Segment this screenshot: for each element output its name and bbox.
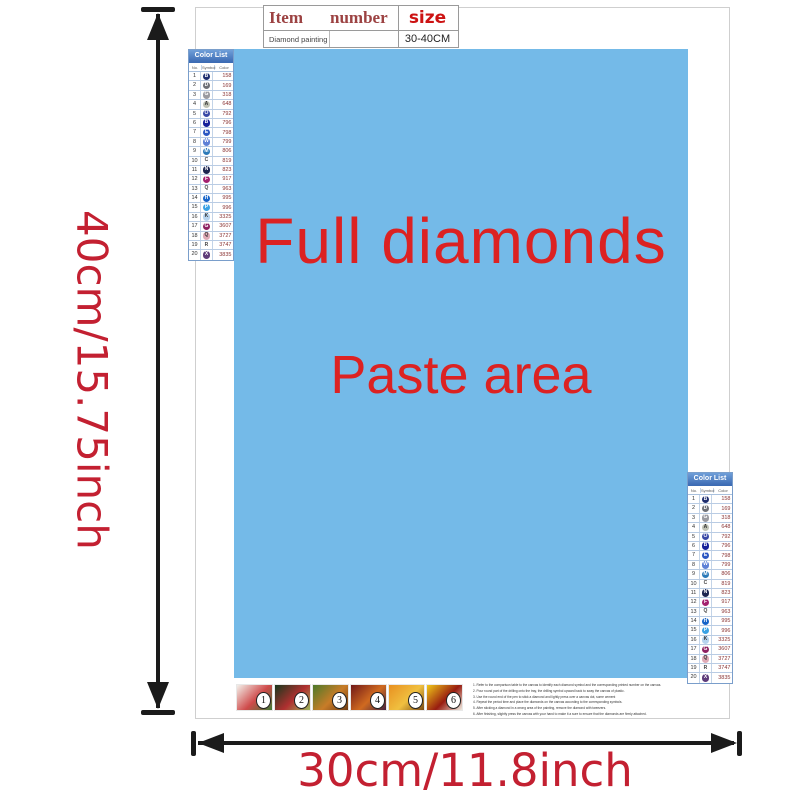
- color-row-number: 17: [688, 645, 700, 653]
- color-symbol-glyph: A: [203, 101, 210, 108]
- color-list-row: 3 G 318: [688, 514, 732, 523]
- color-list-row: 20 X 3835: [189, 250, 233, 259]
- product-sheet: Item number size Diamond painting 30-40C…: [195, 7, 730, 719]
- color-symbol-icon: M: [700, 570, 712, 578]
- color-row-number: 9: [189, 147, 201, 155]
- color-dmc-code: 798: [213, 130, 233, 136]
- color-dmc-code: 169: [213, 83, 233, 89]
- color-symbol-glyph: R: [702, 665, 709, 672]
- color-list-row: 19 R 3747: [189, 241, 233, 250]
- color-symbol-icon: C: [201, 157, 213, 165]
- color-list-row: 8 W 799: [688, 561, 732, 570]
- color-symbol-icon: B: [201, 119, 213, 127]
- color-dmc-code: 917: [712, 599, 732, 605]
- color-list-left: Color List No. Symbol Color 1 B 158 2 D …: [188, 49, 234, 261]
- color-symbol-icon: W: [700, 561, 712, 569]
- instructions-text: 1. Refer to the comparison table to the …: [473, 683, 705, 718]
- color-list-row: 14 H 995: [189, 194, 233, 203]
- color-symbol-glyph: Q: [203, 232, 210, 239]
- color-symbol-glyph: C: [203, 157, 210, 164]
- color-symbol-icon: A: [700, 523, 712, 531]
- color-symbol-glyph: G: [203, 223, 210, 230]
- color-symbol-glyph: G: [702, 514, 709, 521]
- color-dmc-code: 798: [712, 553, 732, 559]
- color-symbol-glyph: Q: [702, 655, 709, 662]
- color-dmc-code: 318: [712, 515, 732, 521]
- color-symbol-glyph: C: [702, 580, 709, 587]
- color-row-number: 2: [189, 81, 201, 89]
- color-symbol-icon: G: [201, 222, 213, 230]
- color-symbol-glyph: K: [203, 213, 210, 220]
- color-list-row: 17 G 3607: [189, 222, 233, 231]
- color-list-row: 5 O 792: [688, 533, 732, 542]
- color-row-number: 6: [688, 542, 700, 550]
- color-list-title: Color List: [688, 473, 732, 486]
- color-symbol-icon: H: [201, 194, 213, 202]
- horizontal-arrow-left-cap: [191, 731, 196, 756]
- color-dmc-code: 819: [712, 581, 732, 587]
- color-row-number: 19: [688, 664, 700, 672]
- color-dmc-code: 806: [712, 571, 732, 577]
- color-row-number: 5: [688, 533, 700, 541]
- color-symbol-icon: X: [201, 250, 213, 259]
- color-dmc-code: 806: [213, 148, 233, 154]
- color-list-row: 4 A 648: [688, 523, 732, 532]
- color-symbol-glyph: F: [702, 599, 709, 606]
- color-list-subheader: No. Symbol Color: [688, 486, 732, 495]
- color-row-number: 7: [189, 128, 201, 136]
- color-dmc-code: 3747: [213, 242, 233, 248]
- color-row-number: 19: [189, 241, 201, 249]
- color-row-number: 18: [189, 232, 201, 240]
- color-list-row: 17 G 3607: [688, 645, 732, 654]
- color-symbol-icon: K: [700, 636, 712, 644]
- color-symbol-icon: D: [201, 81, 213, 89]
- color-symbol-glyph: D: [702, 505, 709, 512]
- color-dmc-code: 3727: [712, 656, 732, 662]
- paste-area: Full diamonds Paste area: [234, 49, 688, 678]
- color-list-row: 13 Q 963: [688, 608, 732, 617]
- size-header: size: [398, 6, 456, 30]
- arrow-down-icon: [147, 682, 169, 709]
- color-symbol-icon: E: [700, 551, 712, 559]
- color-row-number: 12: [688, 598, 700, 606]
- number-header: number: [330, 8, 398, 28]
- color-list-row: 4 A 648: [189, 100, 233, 109]
- color-dmc-code: 3325: [213, 214, 233, 220]
- color-symbol-glyph: X: [702, 674, 709, 681]
- color-symbol-glyph: O: [203, 110, 210, 117]
- color-symbol-glyph: A: [702, 524, 709, 531]
- color-dmc-code: 799: [712, 562, 732, 568]
- color-symbol-glyph: B: [702, 542, 709, 549]
- item-info-table: Item number size Diamond painting 30-40C…: [263, 5, 459, 48]
- color-list-row: 5 O 792: [189, 110, 233, 119]
- color-dmc-code: 996: [213, 205, 233, 211]
- color-row-number: 11: [688, 589, 700, 597]
- color-dmc-code: 648: [213, 101, 233, 107]
- color-list-row: 16 K 3325: [688, 636, 732, 645]
- paste-area-title-line2: Paste area: [234, 344, 688, 406]
- color-row-number: 20: [189, 250, 201, 259]
- color-list-row: 3 G 318: [189, 91, 233, 100]
- color-dmc-code: 3325: [712, 637, 732, 643]
- color-list-row: 15 P 996: [189, 203, 233, 212]
- color-dmc-code: 3835: [213, 252, 233, 258]
- color-symbol-icon: Q: [201, 185, 213, 193]
- color-symbol-glyph: G: [203, 91, 210, 98]
- color-symbol-icon: B: [700, 542, 712, 550]
- color-symbol-icon: G: [700, 514, 712, 522]
- color-symbol-icon: P: [700, 626, 712, 634]
- step-thumbnails: 1 2 3 4 5 6: [236, 684, 463, 711]
- color-symbol-icon: O: [700, 533, 712, 541]
- color-dmc-code: 963: [213, 186, 233, 192]
- color-row-number: 8: [688, 561, 700, 569]
- color-symbol-icon: N: [700, 589, 712, 597]
- color-row-number: 14: [189, 194, 201, 202]
- color-dmc-code: 995: [213, 195, 233, 201]
- color-symbol-glyph: G: [702, 646, 709, 653]
- color-row-number: 4: [688, 523, 700, 531]
- color-symbol-icon: B: [700, 495, 712, 503]
- color-dmc-code: 963: [712, 609, 732, 615]
- color-row-number: 1: [688, 495, 700, 503]
- step-thumbnail-image: 1: [236, 684, 273, 711]
- color-list-subheader: No. Symbol Color: [189, 63, 233, 72]
- color-symbol-icon: R: [700, 664, 712, 672]
- step-number-badge: 1: [256, 692, 271, 709]
- color-dmc-code: 3747: [712, 665, 732, 671]
- color-symbol-icon: D: [700, 504, 712, 512]
- item-header: Item: [264, 8, 330, 28]
- color-symbol-glyph: X: [203, 251, 210, 258]
- color-row-number: 13: [688, 608, 700, 616]
- step-thumbnail-image: 6: [426, 684, 463, 711]
- color-dmc-code: 792: [712, 534, 732, 540]
- instruction-line: 6. After finishing, slightly press the c…: [473, 712, 705, 718]
- size-value: 30-40CM: [398, 31, 456, 47]
- arrow-right-icon: [711, 733, 737, 753]
- vertical-arrow-line: [156, 14, 160, 708]
- color-symbol-glyph: M: [702, 571, 709, 578]
- step-number-badge: 6: [446, 692, 461, 709]
- color-row-number: 3: [688, 514, 700, 522]
- color-row-number: 1: [189, 72, 201, 80]
- color-row-number: 4: [189, 100, 201, 108]
- color-row-number: 17: [189, 222, 201, 230]
- color-symbol-glyph: E: [203, 129, 210, 136]
- height-dimension-label: 40cm/15.75inch: [50, 210, 134, 550]
- horizontal-arrow-right-cap: [737, 731, 742, 756]
- color-symbol-icon: X: [700, 673, 712, 682]
- color-symbol-glyph: H: [203, 195, 210, 202]
- color-list-row: 6 B 796: [189, 119, 233, 128]
- color-list-row: 13 Q 963: [189, 185, 233, 194]
- color-symbol-icon: H: [700, 617, 712, 625]
- color-row-number: 18: [688, 655, 700, 663]
- color-row-number: 14: [688, 617, 700, 625]
- color-symbol-glyph: Q: [203, 185, 210, 192]
- color-row-number: 16: [189, 213, 201, 221]
- color-list-row: 15 P 996: [688, 626, 732, 635]
- color-row-number: 15: [189, 203, 201, 211]
- color-symbol-glyph: E: [702, 552, 709, 559]
- color-symbol-glyph: H: [702, 618, 709, 625]
- color-symbol-icon: M: [201, 147, 213, 155]
- color-list-row: 14 H 995: [688, 617, 732, 626]
- color-row-number: 6: [189, 119, 201, 127]
- color-list-row: 20 X 3835: [688, 673, 732, 682]
- color-dmc-code: 996: [712, 628, 732, 634]
- color-row-number: 8: [189, 138, 201, 146]
- width-dimension-label: 30cm/11.8inch: [235, 744, 695, 797]
- color-symbol-glyph: O: [702, 533, 709, 540]
- color-dmc-code: 823: [712, 590, 732, 596]
- color-dmc-code: 995: [712, 618, 732, 624]
- step-thumbnail-image: 2: [274, 684, 311, 711]
- col-symbol-label: Symbol: [701, 488, 714, 493]
- color-dmc-code: 3607: [213, 223, 233, 229]
- color-symbol-icon: Q: [700, 608, 712, 616]
- color-list-row: 7 E 798: [688, 551, 732, 560]
- color-symbol-glyph: N: [702, 589, 709, 596]
- item-table-value-row: Diamond painting 30-40CM: [264, 31, 458, 47]
- color-symbol-icon: A: [201, 100, 213, 108]
- color-dmc-code: 792: [213, 111, 233, 117]
- step-number-badge: 5: [408, 692, 423, 709]
- color-dmc-code: 796: [712, 543, 732, 549]
- color-symbol-glyph: M: [203, 148, 210, 155]
- color-dmc-code: 3727: [213, 233, 233, 239]
- arrow-up-icon: [147, 13, 169, 40]
- color-row-number: 2: [688, 504, 700, 512]
- color-list-row: 11 N 823: [688, 589, 732, 598]
- color-row-number: 9: [688, 570, 700, 578]
- color-symbol-glyph: D: [203, 82, 210, 89]
- color-list-row: 12 F 917: [688, 598, 732, 607]
- color-symbol-glyph: F: [203, 176, 210, 183]
- color-list-row: 1 B 158: [688, 495, 732, 504]
- color-list-row: 1 B 158: [189, 72, 233, 81]
- color-row-number: 11: [189, 166, 201, 174]
- step-thumbnail-image: 5: [388, 684, 425, 711]
- color-symbol-icon: B: [201, 72, 213, 80]
- color-symbol-icon: Q: [201, 232, 213, 240]
- color-symbol-glyph: N: [203, 166, 210, 173]
- col-color-label: Color: [215, 65, 233, 70]
- col-no-label: No.: [189, 65, 202, 70]
- color-row-number: 5: [189, 110, 201, 118]
- color-list-row: 18 Q 3727: [189, 232, 233, 241]
- color-list-row: 2 D 169: [688, 504, 732, 513]
- color-list-title: Color List: [189, 50, 233, 63]
- col-symbol-label: Symbol: [202, 65, 215, 70]
- color-list-row: 7 E 798: [189, 128, 233, 137]
- color-row-number: 3: [189, 91, 201, 99]
- color-symbol-glyph: R: [203, 242, 210, 249]
- color-row-number: 12: [189, 175, 201, 183]
- color-dmc-code: 799: [213, 139, 233, 145]
- color-list-row: 10 C 819: [688, 580, 732, 589]
- color-dmc-code: 3835: [712, 675, 732, 681]
- color-dmc-code: 819: [213, 158, 233, 164]
- color-symbol-icon: K: [201, 213, 213, 221]
- item-value: Diamond painting: [264, 31, 330, 47]
- color-symbol-glyph: B: [203, 119, 210, 126]
- color-symbol-icon: Q: [700, 655, 712, 663]
- color-dmc-code: 169: [712, 506, 732, 512]
- color-symbol-icon: N: [201, 166, 213, 174]
- color-list-row: 9 M 806: [189, 147, 233, 156]
- color-symbol-icon: P: [201, 203, 213, 211]
- color-row-number: 13: [189, 185, 201, 193]
- color-symbol-glyph: B: [702, 496, 709, 503]
- color-list-row: 12 F 917: [189, 175, 233, 184]
- color-dmc-code: 648: [712, 524, 732, 530]
- color-row-number: 10: [688, 580, 700, 588]
- color-dmc-code: 823: [213, 167, 233, 173]
- color-symbol-icon: G: [700, 645, 712, 653]
- color-symbol-glyph: W: [702, 561, 709, 568]
- color-row-number: 15: [688, 626, 700, 634]
- step-number-badge: 3: [332, 692, 347, 709]
- color-symbol-glyph: K: [702, 636, 709, 643]
- color-symbol-icon: C: [700, 580, 712, 588]
- color-list-row: 10 C 819: [189, 157, 233, 166]
- step-thumbnail-image: 3: [312, 684, 349, 711]
- color-list-right: Color List No. Symbol Color 1 B 158 2 D …: [687, 472, 733, 684]
- color-list-row: 11 N 823: [189, 166, 233, 175]
- color-symbol-glyph: W: [203, 138, 210, 145]
- color-list-row: 8 W 799: [189, 138, 233, 147]
- color-list-row: 18 Q 3727: [688, 655, 732, 664]
- color-symbol-icon: F: [201, 175, 213, 183]
- color-symbol-icon: W: [201, 138, 213, 146]
- step-thumbnail-image: 4: [350, 684, 387, 711]
- color-symbol-icon: G: [201, 91, 213, 99]
- color-list-row: 6 B 796: [688, 542, 732, 551]
- paste-area-title-line1: Full diamonds: [234, 204, 688, 278]
- color-dmc-code: 3607: [712, 646, 732, 652]
- color-symbol-glyph: P: [702, 627, 709, 634]
- color-list-row: 2 D 169: [189, 81, 233, 90]
- color-symbol-glyph: Q: [702, 608, 709, 615]
- color-dmc-code: 158: [213, 73, 233, 79]
- step-number-badge: 4: [370, 692, 385, 709]
- col-color-label: Color: [714, 488, 732, 493]
- color-dmc-code: 796: [213, 120, 233, 126]
- color-row-number: 16: [688, 636, 700, 644]
- color-symbol-icon: E: [201, 128, 213, 136]
- color-row-number: 7: [688, 551, 700, 559]
- item-table-header-row: Item number size: [264, 6, 458, 31]
- vertical-arrow-top-cap: [141, 7, 175, 12]
- color-symbol-icon: O: [201, 110, 213, 118]
- color-list-row: 16 K 3325: [189, 213, 233, 222]
- color-row-number: 10: [189, 157, 201, 165]
- color-dmc-code: 318: [213, 92, 233, 98]
- arrow-left-icon: [198, 733, 224, 753]
- step-number-badge: 2: [294, 692, 309, 709]
- color-symbol-icon: R: [201, 241, 213, 249]
- color-dmc-code: 917: [213, 176, 233, 182]
- color-dmc-code: 158: [712, 496, 732, 502]
- color-list-row: 9 M 806: [688, 570, 732, 579]
- col-no-label: No.: [688, 488, 701, 493]
- color-symbol-glyph: B: [203, 73, 210, 80]
- color-symbol-icon: F: [700, 598, 712, 606]
- color-list-row: 19 R 3747: [688, 664, 732, 673]
- vertical-arrow-bottom-cap: [141, 710, 175, 715]
- color-row-number: 20: [688, 673, 700, 682]
- color-symbol-glyph: P: [203, 204, 210, 211]
